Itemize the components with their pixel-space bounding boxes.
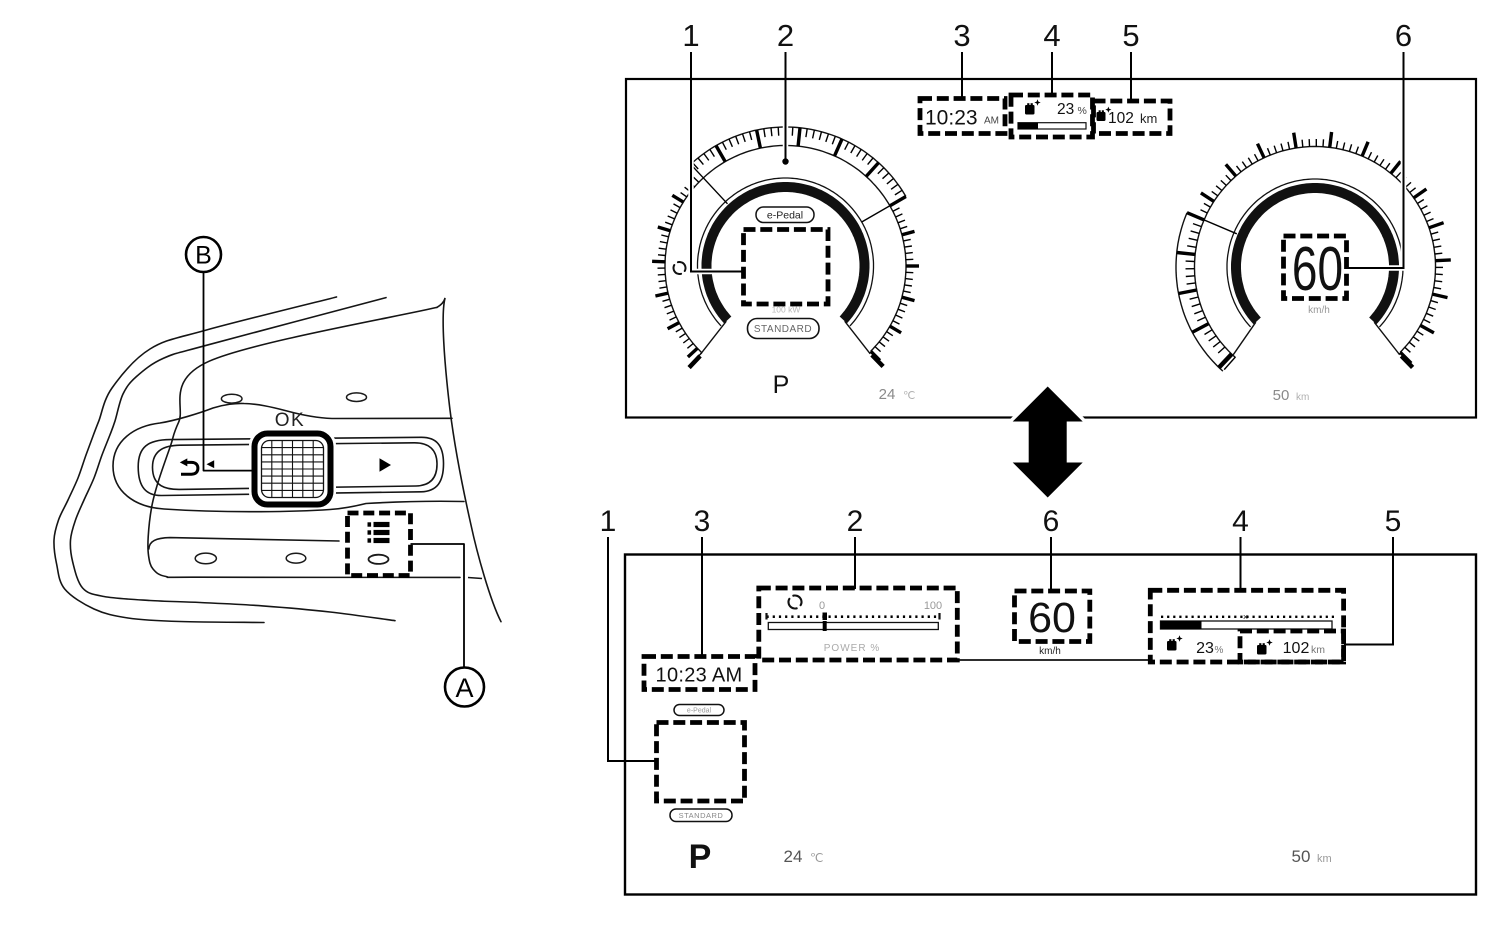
svg-text:km/h: km/h: [1039, 646, 1061, 657]
svg-text:km: km: [1311, 644, 1325, 656]
svg-text:3: 3: [694, 505, 711, 538]
svg-text:km: km: [1296, 392, 1309, 403]
svg-text:STANDARD: STANDARD: [754, 324, 812, 335]
svg-text:%: %: [1215, 645, 1224, 656]
svg-text:50: 50: [1292, 847, 1311, 866]
svg-text:60: 60: [1292, 234, 1343, 303]
svg-text:23: 23: [1196, 640, 1214, 657]
svg-text:2: 2: [847, 505, 864, 538]
svg-text:23: 23: [1057, 101, 1074, 118]
svg-text:3: 3: [953, 18, 970, 53]
svg-text:STANDARD: STANDARD: [679, 811, 724, 820]
svg-text:%: %: [1078, 105, 1087, 117]
svg-text:e-Pedal: e-Pedal: [687, 708, 712, 715]
svg-text:P: P: [689, 838, 712, 876]
svg-text:0: 0: [819, 600, 825, 612]
svg-text:4: 4: [1043, 18, 1060, 53]
svg-text:AM: AM: [984, 116, 999, 127]
svg-text:℃: ℃: [810, 851, 823, 865]
svg-text:102: 102: [1108, 110, 1134, 127]
svg-text:2: 2: [777, 18, 794, 53]
svg-text:10:23 AM: 10:23 AM: [656, 665, 743, 687]
svg-text:5: 5: [1385, 505, 1402, 538]
svg-text:100: 100: [924, 600, 942, 612]
svg-text:1: 1: [600, 505, 617, 538]
svg-text:POWER %: POWER %: [824, 643, 880, 654]
svg-text:6: 6: [1395, 18, 1412, 53]
svg-text:24: 24: [879, 386, 896, 403]
svg-text:℃: ℃: [903, 390, 915, 402]
svg-text:24: 24: [784, 847, 803, 866]
svg-text:102: 102: [1283, 640, 1310, 657]
svg-text:5: 5: [1122, 18, 1139, 53]
svg-text:6: 6: [1043, 505, 1060, 538]
svg-text:OK: OK: [275, 410, 305, 431]
svg-text:4: 4: [1232, 505, 1249, 538]
svg-text:50: 50: [1273, 387, 1290, 404]
svg-text:60: 60: [1028, 594, 1076, 642]
svg-text:km: km: [1140, 111, 1157, 126]
svg-text:e-Pedal: e-Pedal: [767, 210, 803, 222]
svg-text:P: P: [773, 371, 790, 399]
svg-text:B: B: [195, 242, 212, 270]
svg-text:km/h: km/h: [1308, 305, 1330, 316]
svg-text:km: km: [1317, 853, 1332, 865]
svg-text:A: A: [455, 673, 473, 703]
svg-text:1: 1: [682, 18, 699, 53]
svg-text:10:23: 10:23: [925, 107, 978, 130]
